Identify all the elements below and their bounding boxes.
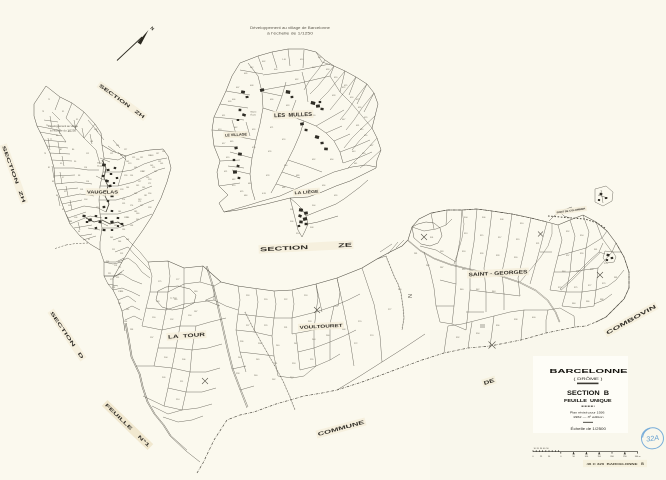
svg-text:191: 191 xyxy=(140,205,143,207)
svg-text:164: 164 xyxy=(126,187,129,189)
svg-text:203: 203 xyxy=(110,237,113,239)
svg-text:( DRÔME ): ( DRÔME ) xyxy=(574,376,603,381)
svg-text:73: 73 xyxy=(42,111,44,113)
svg-text:154: 154 xyxy=(130,175,133,177)
svg-text:196: 196 xyxy=(122,229,125,231)
svg-text:300 m: 300 m xyxy=(635,456,641,458)
svg-text:85: 85 xyxy=(62,209,64,211)
svg-text:120: 120 xyxy=(96,207,99,209)
svg-text:à l’échelle du 1/1250: à l’échelle du 1/1250 xyxy=(50,129,76,133)
svg-text:SECTION B: SECTION B xyxy=(567,391,610,397)
svg-text:169: 169 xyxy=(142,187,145,189)
svg-text:174: 174 xyxy=(122,199,125,201)
svg-text:181: 181 xyxy=(144,195,147,197)
svg-text:137: 137 xyxy=(156,153,159,155)
svg-text:176: 176 xyxy=(130,205,133,207)
svg-text:81: 81 xyxy=(48,167,50,169)
svg-text:N: N xyxy=(406,294,412,298)
svg-text:233: 233 xyxy=(126,309,129,311)
svg-text:90: 90 xyxy=(78,231,80,233)
svg-text:Mairie: Mairie xyxy=(251,111,258,114)
svg-text:139: 139 xyxy=(162,151,165,153)
svg-text:122: 122 xyxy=(110,153,113,155)
svg-text:Développement au village: Développement au village xyxy=(48,124,78,128)
svg-text:223: 223 xyxy=(116,277,119,279)
svg-text:172: 172 xyxy=(148,183,151,185)
svg-text:84: 84 xyxy=(56,195,58,197)
svg-text:231: 231 xyxy=(118,303,121,305)
svg-text:FEUILLE UNIQUE: FEUILLE UNIQUE xyxy=(564,398,612,403)
svg-text:71: 71 xyxy=(48,99,50,101)
svg-text:157: 157 xyxy=(138,181,141,183)
svg-text:213: 213 xyxy=(120,253,123,255)
svg-text:226: 226 xyxy=(112,287,115,289)
svg-text:132: 132 xyxy=(140,157,143,159)
svg-text:184: 184 xyxy=(118,211,121,213)
svg-text:129: 129 xyxy=(132,157,135,159)
svg-text:108: 108 xyxy=(94,129,97,131)
svg-text:221: 221 xyxy=(108,273,111,275)
svg-text:124: 124 xyxy=(116,145,119,147)
svg-text:110: 110 xyxy=(90,141,93,143)
svg-text:211: 211 xyxy=(112,249,115,251)
svg-text:BARCELONNE: BARCELONNE xyxy=(550,369,628,375)
svg-text:Vieux: Vieux xyxy=(97,163,102,165)
svg-text:1962 — 3º édition: 1962 — 3º édition xyxy=(573,415,604,419)
svg-text:92: 92 xyxy=(88,239,90,241)
svg-text:193: 193 xyxy=(114,225,117,227)
svg-text:46 C 320 BARCELONNE: 46 C 320 BARCELONNE xyxy=(587,462,638,466)
svg-text:112: 112 xyxy=(86,153,89,155)
svg-text:116: 116 xyxy=(86,181,89,183)
svg-text:à l’échelle de 1/1250: à l’échelle de 1/1250 xyxy=(267,32,313,36)
svg-text:238: 238 xyxy=(130,329,133,331)
svg-text:236: 236 xyxy=(124,321,127,323)
svg-text:Développement au village de: Développement au village de Barcelonne xyxy=(250,26,330,30)
svg-text:83: 83 xyxy=(52,181,54,183)
svg-text:32A: 32A xyxy=(646,433,660,444)
svg-text:144: 144 xyxy=(134,167,137,169)
svg-text:206: 206 xyxy=(118,241,121,243)
svg-text:162: 162 xyxy=(154,171,157,173)
svg-text:École: École xyxy=(251,114,257,117)
svg-text:VAUGELAS: VAUGELAS xyxy=(87,190,118,195)
svg-text:Échelle de 1/2500: Échelle de 1/2500 xyxy=(571,426,607,431)
svg-text:201: 201 xyxy=(136,219,139,221)
svg-text:179: 179 xyxy=(138,201,141,203)
svg-text:Plan révisé pour 1936: Plan révisé pour 1936 xyxy=(570,410,605,414)
svg-text:198: 198 xyxy=(130,225,133,227)
svg-text:114: 114 xyxy=(84,167,87,169)
svg-text:B: B xyxy=(641,462,644,466)
svg-text:86: 86 xyxy=(70,221,72,223)
svg-text:77: 77 xyxy=(50,139,52,141)
svg-text:166: 166 xyxy=(134,193,137,195)
svg-text:127: 127 xyxy=(124,149,127,151)
svg-text:218: 218 xyxy=(114,265,117,267)
svg-text:79: 79 xyxy=(44,153,46,155)
